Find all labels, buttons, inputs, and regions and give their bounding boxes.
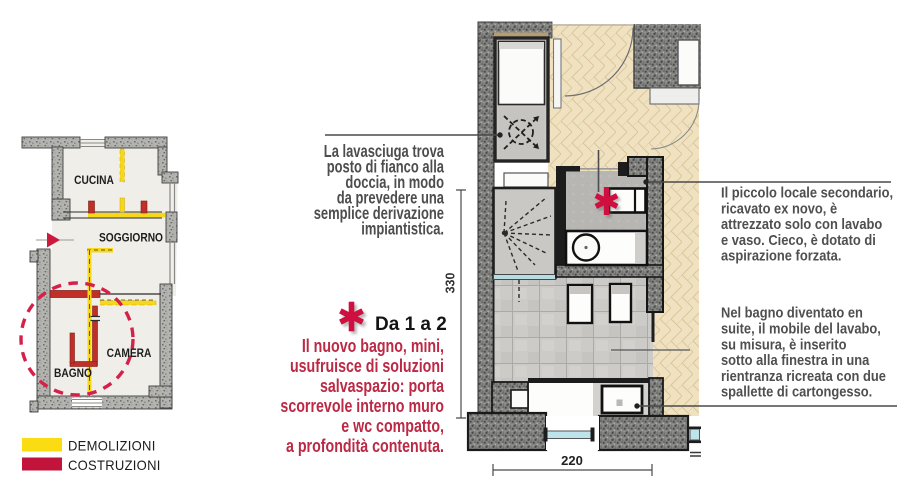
svg-text:impiantistica.: impiantistica. — [361, 220, 444, 240]
svg-text:ricavato ex novo, è: ricavato ex novo, è — [721, 201, 837, 217]
svg-text:Da 1 a 2: Da 1 a 2 — [375, 314, 447, 335]
svg-text:rientranza ricreata con due: rientranza ricreata con due — [721, 368, 886, 384]
svg-text:BAGNO: BAGNO — [54, 367, 92, 380]
svg-text:e vaso. Cieco, è dotato di: e vaso. Cieco, è dotato di — [721, 232, 876, 248]
svg-text:CAMERA: CAMERA — [107, 347, 152, 360]
svg-text:COSTRUZIONI: COSTRUZIONI — [68, 458, 161, 474]
svg-text:usufruisce di soluzioni: usufruisce di soluzioni — [290, 356, 444, 376]
svg-text:suite, il mobile del lavabo,: suite, il mobile del lavabo, — [721, 321, 881, 337]
svg-text:Nel bagno diventato en: Nel bagno diventato en — [721, 305, 863, 321]
svg-text:salvaspazio: porta: salvaspazio: porta — [320, 376, 445, 396]
svg-text:a profondità contenuta.: a profondità contenuta. — [286, 436, 444, 456]
svg-text:DEMOLIZIONI: DEMOLIZIONI — [68, 438, 156, 454]
svg-text:su misura, è inserito: su misura, è inserito — [721, 337, 846, 353]
svg-text:330: 330 — [444, 273, 458, 294]
svg-text:CUCINA: CUCINA — [74, 174, 114, 187]
svg-text:Il piccolo locale secondario,: Il piccolo locale secondario, — [721, 185, 893, 201]
svg-text:220: 220 — [561, 453, 583, 468]
svg-text:e wc compatto,: e wc compatto, — [341, 416, 444, 436]
svg-text:Il nuovo bagno, mini,: Il nuovo bagno, mini, — [302, 336, 444, 356]
svg-text:sotto alla finestra in una: sotto alla finestra in una — [721, 352, 870, 368]
svg-text:scorrevole interno muro: scorrevole interno muro — [280, 396, 444, 416]
svg-text:attrezzato solo con lavabo: attrezzato solo con lavabo — [721, 216, 882, 232]
svg-text:spallette di cartongesso.: spallette di cartongesso. — [721, 384, 872, 400]
svg-text:SOGGIORNO: SOGGIORNO — [99, 232, 163, 245]
svg-text:aspirazione forzata.: aspirazione forzata. — [721, 248, 841, 264]
